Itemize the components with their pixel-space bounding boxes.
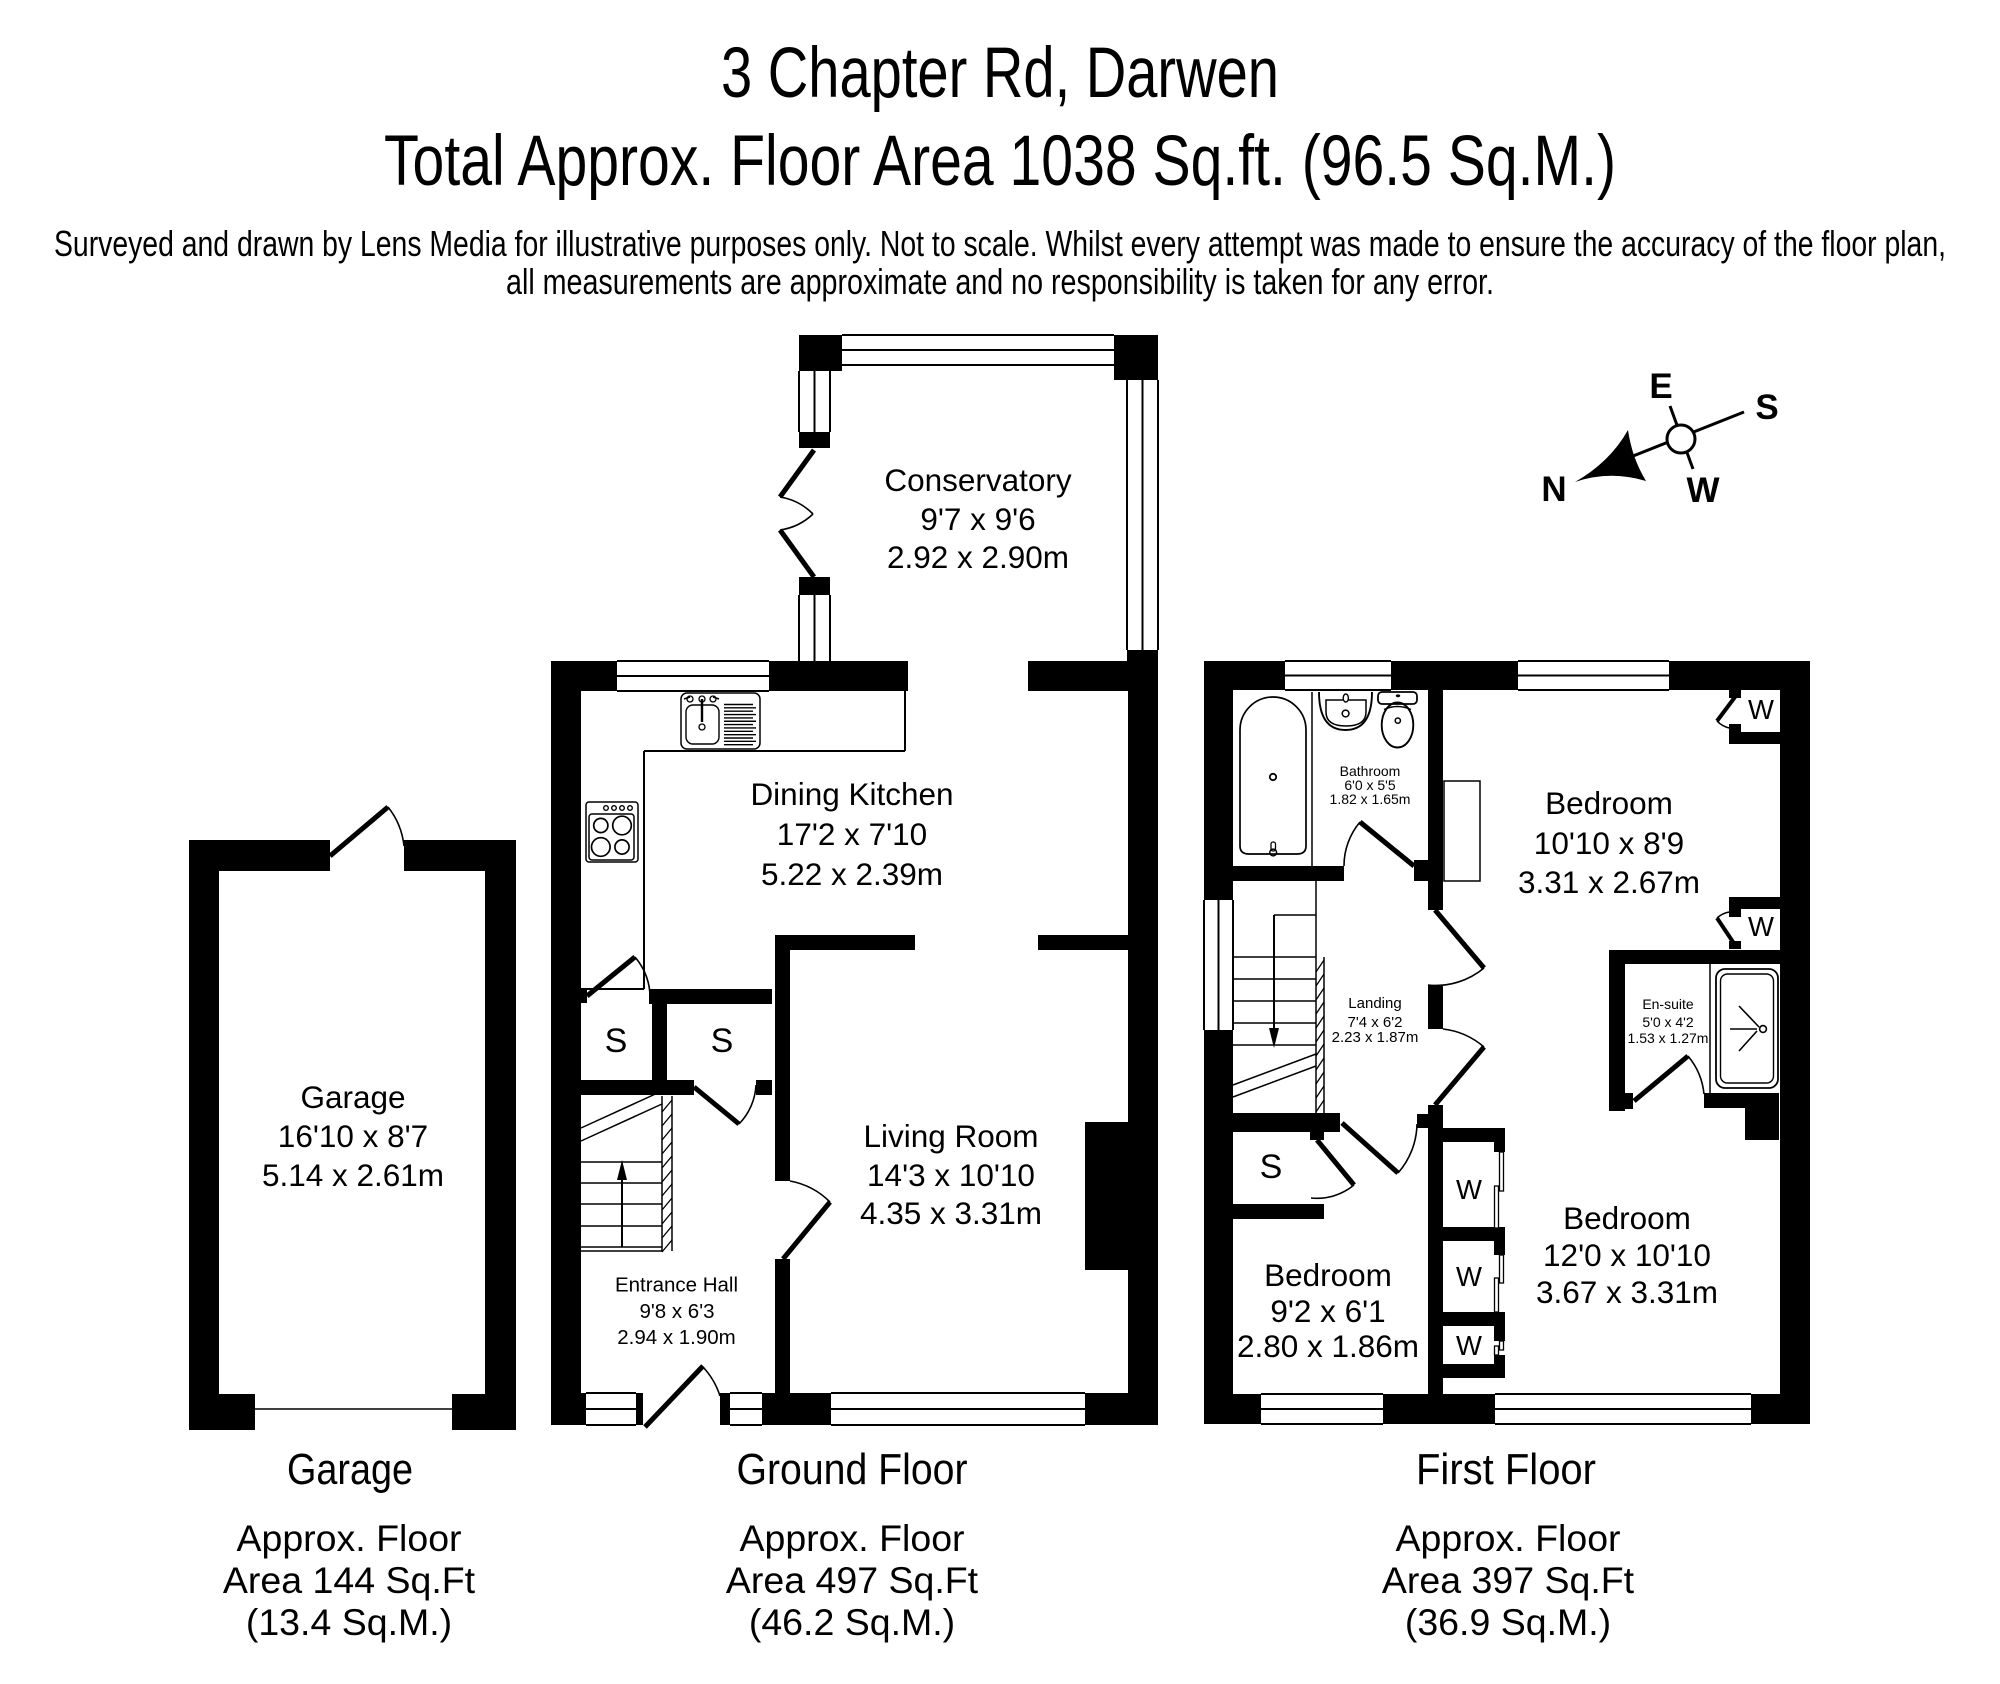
svg-text:Garage: Garage bbox=[287, 1445, 413, 1494]
svg-text:17'2 x 7'10: 17'2 x 7'10 bbox=[777, 816, 927, 852]
svg-text:2.94 x 1.90m: 2.94 x 1.90m bbox=[617, 1326, 736, 1349]
svg-text:3 Chapter Rd, Darwen: 3 Chapter Rd, Darwen bbox=[721, 34, 1279, 113]
svg-text:12'0 x 10'10: 12'0 x 10'10 bbox=[1543, 1237, 1711, 1273]
svg-text:Landing: Landing bbox=[1348, 995, 1401, 1012]
svg-text:Bedroom: Bedroom bbox=[1563, 1200, 1691, 1236]
svg-text:1.82 x 1.65m: 1.82 x 1.65m bbox=[1330, 791, 1411, 807]
svg-text:E: E bbox=[1649, 367, 1672, 406]
svg-text:S: S bbox=[1755, 388, 1778, 427]
svg-text:all measurements are approxima: all measurements are approximate and no … bbox=[506, 261, 1494, 302]
svg-text:W: W bbox=[1456, 1174, 1482, 1205]
svg-text:4.35 x 3.31m: 4.35 x 3.31m bbox=[860, 1195, 1042, 1231]
svg-text:Entrance Hall: Entrance Hall bbox=[615, 1274, 738, 1297]
svg-text:Garage: Garage bbox=[300, 1079, 405, 1115]
svg-text:5.22 x 2.39m: 5.22 x 2.39m bbox=[761, 856, 943, 892]
svg-text:9'2 x 6'1: 9'2 x 6'1 bbox=[1270, 1293, 1385, 1329]
svg-text:9'7 x 9'6: 9'7 x 9'6 bbox=[920, 501, 1035, 537]
svg-text:3.67 x 3.31m: 3.67 x 3.31m bbox=[1536, 1274, 1718, 1310]
svg-text:Area 497 Sq.Ft: Area 497 Sq.Ft bbox=[726, 1559, 979, 1601]
svg-text:Bedroom: Bedroom bbox=[1545, 785, 1673, 821]
svg-text:W: W bbox=[1748, 911, 1774, 942]
svg-text:Conservatory: Conservatory bbox=[884, 462, 1072, 498]
svg-text:5.14 x 2.61m: 5.14 x 2.61m bbox=[262, 1157, 444, 1193]
svg-text:16'10 x 8'7: 16'10 x 8'7 bbox=[278, 1118, 428, 1154]
svg-text:W: W bbox=[1456, 1330, 1482, 1361]
svg-text:W: W bbox=[1456, 1261, 1482, 1292]
svg-text:En-suite: En-suite bbox=[1642, 996, 1694, 1012]
svg-text:S: S bbox=[605, 1022, 628, 1060]
svg-text:(13.4 Sq.M.): (13.4 Sq.M.) bbox=[246, 1601, 452, 1643]
svg-text:5'0 x 4'2: 5'0 x 4'2 bbox=[1642, 1014, 1693, 1030]
svg-text:3.31 x 2.67m: 3.31 x 2.67m bbox=[1518, 864, 1700, 900]
svg-text:10'10 x 8'9: 10'10 x 8'9 bbox=[1534, 825, 1684, 861]
svg-text:W: W bbox=[1686, 471, 1719, 510]
svg-text:Approx. Floor: Approx. Floor bbox=[1395, 1517, 1620, 1559]
svg-text:N: N bbox=[1541, 470, 1566, 509]
svg-text:First Floor: First Floor bbox=[1416, 1445, 1596, 1494]
svg-text:S: S bbox=[1260, 1148, 1283, 1186]
svg-text:Total Approx. Floor Area 1038: Total Approx. Floor Area 1038 Sq.ft. (96… bbox=[384, 122, 1616, 201]
svg-text:W: W bbox=[1748, 694, 1774, 725]
svg-text:Surveyed and drawn by Lens Med: Surveyed and drawn by Lens Media for ill… bbox=[54, 223, 1946, 264]
svg-text:Living Room: Living Room bbox=[863, 1118, 1038, 1154]
svg-text:Approx. Floor: Approx. Floor bbox=[739, 1517, 964, 1559]
svg-text:Bedroom: Bedroom bbox=[1264, 1257, 1392, 1293]
svg-text:9'8 x 6'3: 9'8 x 6'3 bbox=[639, 1300, 714, 1323]
svg-text:2.92 x 2.90m: 2.92 x 2.90m bbox=[887, 539, 1069, 575]
svg-text:(46.2 Sq.M.): (46.2 Sq.M.) bbox=[749, 1601, 955, 1643]
svg-text:S: S bbox=[711, 1022, 734, 1060]
svg-text:Dining Kitchen: Dining Kitchen bbox=[750, 776, 953, 812]
svg-text:14'3 x 10'10: 14'3 x 10'10 bbox=[867, 1157, 1035, 1193]
svg-text:2.23 x 1.87m: 2.23 x 1.87m bbox=[1332, 1029, 1419, 1046]
svg-text:Area 144 Sq.Ft: Area 144 Sq.Ft bbox=[223, 1559, 476, 1601]
svg-text:(36.9 Sq.M.): (36.9 Sq.M.) bbox=[1405, 1601, 1611, 1643]
svg-text:Area 397 Sq.Ft: Area 397 Sq.Ft bbox=[1382, 1559, 1635, 1601]
svg-text:2.80 x 1.86m: 2.80 x 1.86m bbox=[1237, 1328, 1419, 1364]
svg-text:Approx. Floor: Approx. Floor bbox=[236, 1517, 461, 1559]
svg-text:1.53 x 1.27m: 1.53 x 1.27m bbox=[1628, 1030, 1709, 1046]
svg-text:Ground Floor: Ground Floor bbox=[737, 1445, 968, 1494]
